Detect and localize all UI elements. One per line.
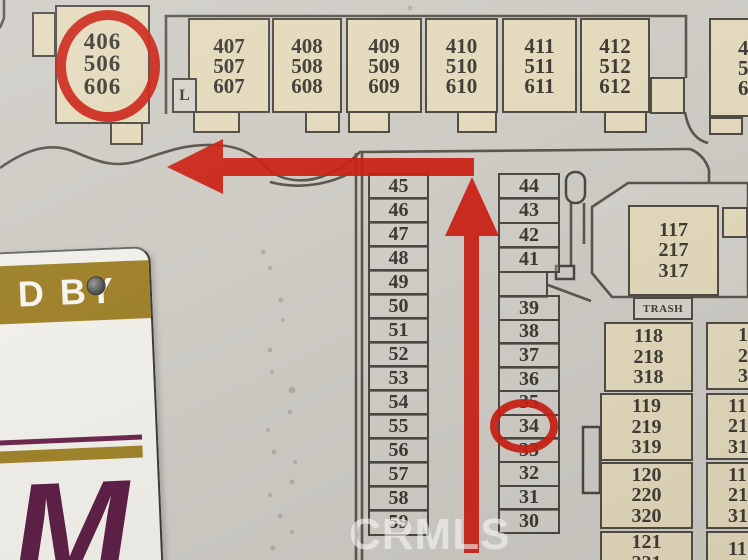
route-arrow-left bbox=[167, 139, 474, 194]
site-map-photo: 406 506 606 L 407 507 607 408 508 608 40… bbox=[0, 0, 748, 560]
highlight-circle-building-406 bbox=[61, 15, 155, 117]
route-arrow-up bbox=[445, 177, 499, 553]
red-annotations bbox=[0, 0, 748, 560]
crmls-watermark: CRMLS bbox=[349, 510, 510, 560]
highlight-circle-space-35 bbox=[494, 403, 554, 449]
